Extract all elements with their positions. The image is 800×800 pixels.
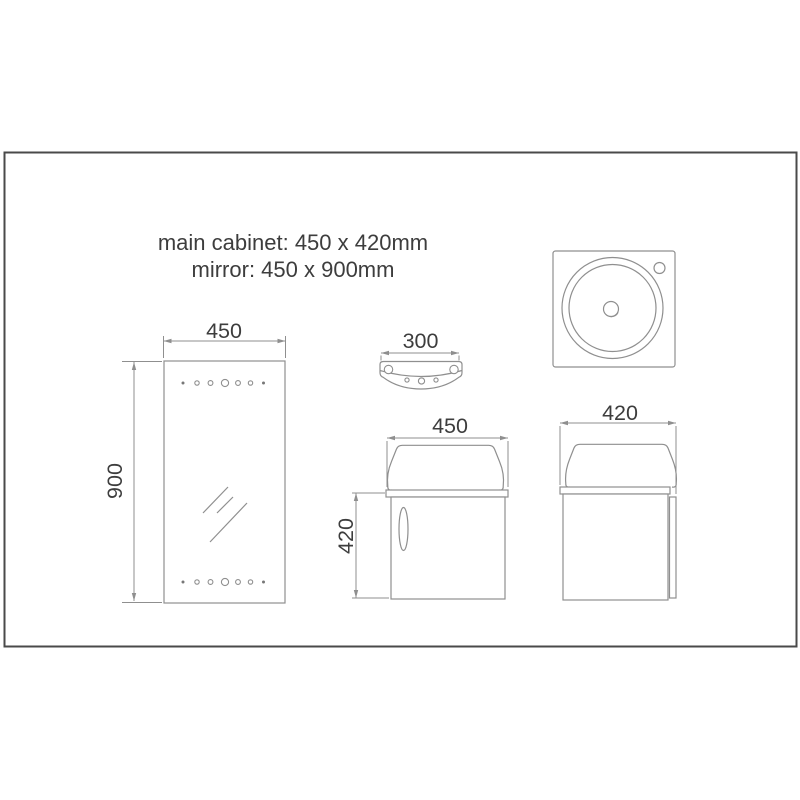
cabinet-side-depth-label: 420: [602, 401, 638, 425]
arrowhead-icon: [132, 362, 136, 370]
arrowhead-icon: [451, 351, 459, 355]
mirror-hole: [262, 581, 265, 584]
mirror-hole: [236, 580, 241, 585]
mirror-hole: [221, 578, 228, 585]
shelf-hole: [384, 365, 392, 373]
cabinet-front-width-label: 450: [432, 414, 468, 438]
basin-front-profile: [387, 445, 503, 490]
cabinet-front-height-label: 420: [334, 518, 358, 554]
mirror-hole: [208, 381, 213, 386]
arrowhead-icon: [387, 436, 395, 440]
countertop-side: [560, 487, 670, 494]
arrowhead-icon: [500, 436, 508, 440]
arrowhead-icon: [278, 339, 286, 343]
mirror-hole: [262, 382, 265, 385]
shelf-hole: [450, 365, 458, 373]
faucet-hole-circle: [654, 263, 665, 274]
countertop-front: [386, 490, 508, 497]
arrowhead-icon: [132, 593, 136, 601]
drawing-sheet: main cabinet: 450 x 420mm mirror: 450 x …: [0, 0, 800, 800]
basin-top-view: [553, 251, 675, 367]
mirror-hole: [221, 379, 228, 386]
arrowhead-icon: [354, 590, 358, 598]
shelf-outline: [380, 362, 462, 390]
cabinet-side-body: [563, 494, 668, 600]
shelf-view: 300: [380, 329, 462, 389]
arrowhead-icon: [381, 351, 389, 355]
cabinet-front-body: [391, 497, 505, 599]
shelf-hole: [418, 378, 424, 384]
mirror-holes-bottom-row: [182, 578, 266, 585]
mirror-hole: [195, 580, 199, 584]
mirror-width-label: 450: [206, 319, 242, 343]
mirror-hole: [248, 580, 252, 584]
basin-side-profile: [566, 444, 677, 487]
mirror-front-view: 450 900: [103, 319, 286, 603]
basin-bowl-circle: [569, 265, 656, 352]
mirror-hole: [182, 382, 185, 385]
cabinet-side-view: 420: [560, 401, 676, 600]
mirror-height-label: 900: [103, 463, 127, 499]
mirror-hole: [208, 580, 213, 585]
title: main cabinet: 450 x 420mm mirror: 450 x …: [158, 230, 428, 282]
arrowhead-icon: [560, 421, 568, 425]
mirror-hole: [182, 581, 185, 584]
glint-line: [203, 487, 228, 513]
glint-line: [217, 497, 233, 513]
arrowhead-icon: [164, 339, 172, 343]
cabinet-front-view: 450 420: [334, 414, 508, 599]
mirror-outline: [164, 361, 285, 603]
basin-rim-circle: [562, 258, 663, 359]
glint-line: [210, 503, 247, 542]
mirror-glint-marks: [203, 487, 247, 542]
title-line-main-cabinet: main cabinet: 450 x 420mm: [158, 230, 428, 255]
shelf-hole: [434, 378, 438, 382]
shelf-width-label: 300: [403, 329, 439, 353]
mirror-hole: [195, 381, 199, 385]
arrowhead-icon: [354, 493, 358, 501]
basin-top-outline: [553, 251, 675, 367]
title-line-mirror: mirror: 450 x 900mm: [192, 257, 395, 282]
mirror-hole: [248, 381, 252, 385]
mirror-holes-top-row: [182, 379, 266, 386]
arrowhead-icon: [668, 421, 676, 425]
door-edge-strip: [670, 497, 677, 598]
mirror-hole: [236, 381, 241, 386]
shelf-hole: [405, 378, 409, 382]
technical-drawing: main cabinet: 450 x 420mm mirror: 450 x …: [0, 0, 800, 800]
